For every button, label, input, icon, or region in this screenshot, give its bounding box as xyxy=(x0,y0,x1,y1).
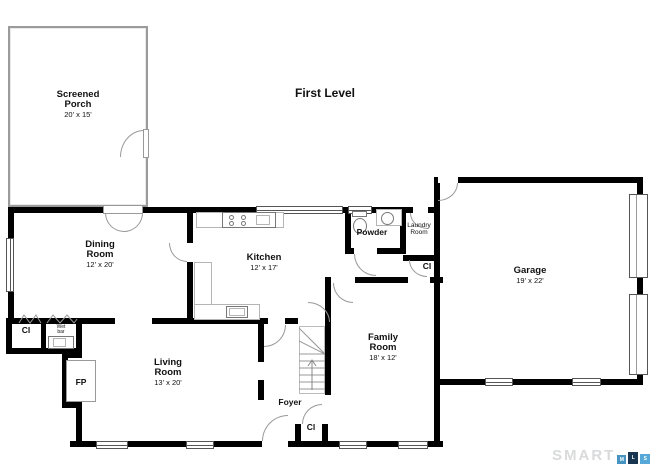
french-door-swing-icon xyxy=(105,213,124,232)
wall xyxy=(285,318,298,324)
stove-burner-icon xyxy=(229,221,234,226)
logo-square-s: S xyxy=(640,454,650,464)
wall xyxy=(434,177,440,447)
smartmls-logo: SMART M L S xyxy=(552,448,650,464)
window xyxy=(186,441,214,449)
room-name: Living Room xyxy=(148,358,188,378)
room-dims: 13' x 20' xyxy=(148,379,188,387)
wall xyxy=(214,441,262,447)
window xyxy=(339,441,367,449)
window xyxy=(485,378,513,386)
closet-bifold-icon xyxy=(46,313,78,324)
room-name: Kitchen xyxy=(234,253,294,263)
stove-burner-icon xyxy=(229,215,234,220)
wall xyxy=(434,379,485,385)
garage-door xyxy=(629,294,648,375)
door-swing-icon xyxy=(169,243,187,262)
floor-plan: First Level xyxy=(0,0,650,473)
closet-label: Cl xyxy=(301,423,321,432)
stairs-symbol xyxy=(299,326,325,394)
wet-bar-label: Wet bar xyxy=(53,325,69,335)
door-swing-icon xyxy=(354,254,376,276)
room-name: Screened Porch xyxy=(43,90,113,110)
room-dims: 20' x 15' xyxy=(43,111,113,119)
wall xyxy=(322,424,328,441)
door-swing-icon xyxy=(438,183,458,201)
wall xyxy=(288,441,339,447)
closet-bifold-icon xyxy=(18,313,42,324)
room-name: Family Room xyxy=(361,333,405,353)
stove-burner-icon xyxy=(241,221,246,226)
window xyxy=(96,441,128,449)
room-dims: 12' x 20' xyxy=(78,261,122,269)
room-label-garage: Garage 19' x 22' xyxy=(500,266,560,285)
kitchen-counter xyxy=(194,262,212,306)
logo-square-m: M xyxy=(617,455,626,464)
room-dims: 19' x 22' xyxy=(500,277,560,285)
wall xyxy=(637,278,643,295)
wall xyxy=(128,441,186,447)
wall xyxy=(78,318,115,324)
door-swing-icon xyxy=(333,283,353,303)
wall xyxy=(513,379,572,385)
room-name: Dining Room xyxy=(78,240,122,260)
room-label-powder: Powder xyxy=(342,228,402,237)
stove-burner-icon xyxy=(241,215,246,220)
wet-bar-sink-symbol xyxy=(53,338,66,347)
wall xyxy=(258,380,264,400)
wall xyxy=(70,441,96,447)
kitchen-sink-basin xyxy=(229,308,245,316)
wall xyxy=(377,248,406,254)
closet-label: Cl xyxy=(16,326,36,335)
room-label-kitchen: Kitchen 12' x 17' xyxy=(234,253,294,272)
room-label-foyer: Foyer xyxy=(265,398,315,407)
wall xyxy=(355,277,408,283)
wall xyxy=(187,207,193,243)
closet-label: Cl xyxy=(417,262,437,271)
room-name: Foyer xyxy=(265,398,315,407)
wall xyxy=(367,441,398,447)
room-name: Powder xyxy=(342,228,402,237)
fireplace-label: FP xyxy=(69,378,93,387)
toilet-tank-icon xyxy=(352,211,367,217)
wall xyxy=(345,248,354,254)
logo-brand-text: SMART xyxy=(552,448,615,464)
room-name: Garage xyxy=(500,266,560,276)
room-label-living: Living Room 13' x 20' xyxy=(148,358,188,387)
wall xyxy=(637,177,643,195)
wall xyxy=(325,277,331,395)
room-label-screened-porch: Screened Porch 20' x 15' xyxy=(43,90,113,119)
logo-square-l: L xyxy=(628,452,638,464)
sink-symbol xyxy=(381,212,394,225)
wall xyxy=(41,324,46,348)
wall xyxy=(8,207,105,213)
page-title: First Level xyxy=(295,86,355,100)
room-label-dining: Dining Room 12' x 20' xyxy=(78,240,122,269)
window xyxy=(572,378,601,386)
wall xyxy=(601,379,643,385)
door-swing-icon xyxy=(302,404,322,424)
front-door-swing-icon xyxy=(262,415,288,441)
garage-door xyxy=(629,194,648,278)
stove-oven-icon xyxy=(256,215,270,225)
window xyxy=(6,238,14,292)
room-dims: 12' x 17' xyxy=(234,264,294,272)
wall xyxy=(187,262,193,324)
wall xyxy=(458,177,643,183)
door-swing-icon xyxy=(264,325,286,347)
french-door-swing-icon xyxy=(124,213,143,232)
window xyxy=(398,441,428,449)
room-label-family: Family Room 18' x 12' xyxy=(361,333,405,362)
room-name: Laundry Room xyxy=(407,222,431,236)
room-dims: 18' x 12' xyxy=(361,354,405,362)
room-label-laundry: Laundry Room xyxy=(401,222,437,236)
wall xyxy=(8,207,14,238)
